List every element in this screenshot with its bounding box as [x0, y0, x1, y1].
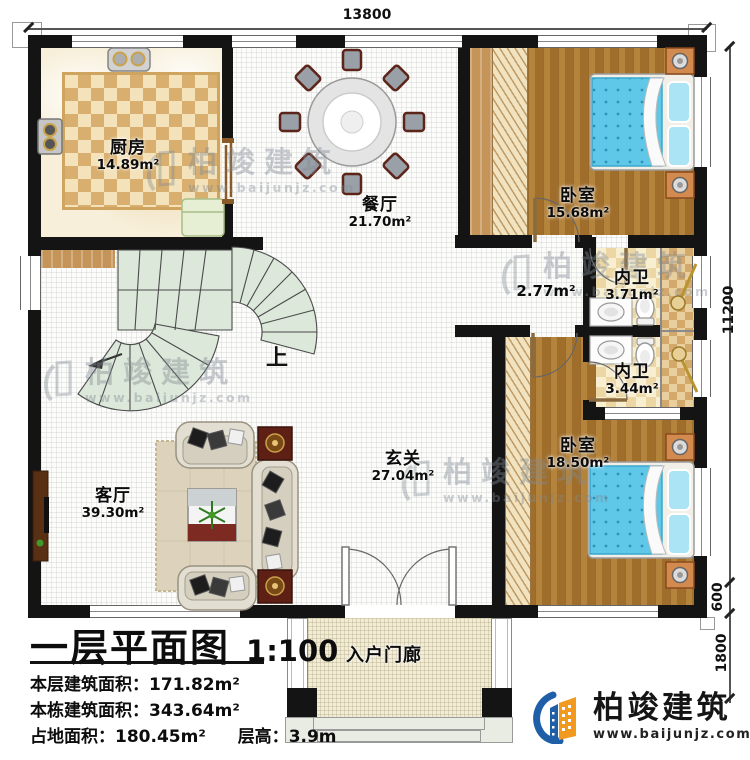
wall: [458, 47, 470, 235]
room-label-dining: 餐厅 21.70m²: [330, 197, 430, 230]
window: [20, 256, 41, 310]
porch-pier: [482, 688, 512, 717]
porch-pier: [287, 688, 317, 717]
wall: [455, 605, 538, 618]
stat-building-area: 本栋建筑面积：343.64m²: [30, 696, 240, 721]
porch-step: [317, 730, 481, 742]
window: [345, 35, 462, 48]
wall: [628, 235, 707, 248]
brand-name: 柏竣建筑: [593, 693, 750, 724]
brand-website: www.baijunjz.com: [593, 727, 750, 742]
floor-plan-canvas: 13800 11200 600 1800: [0, 0, 750, 760]
room-label-hallway: 2.77m²: [496, 283, 596, 300]
wall-thin: [660, 330, 694, 332]
window: [605, 407, 680, 420]
title-underline: [30, 661, 264, 664]
window: [232, 35, 296, 48]
porch-column: [491, 618, 512, 690]
room-label-living: 客厅 39.30m²: [63, 488, 163, 521]
room-label-kitchen: 厨房 14.89m²: [78, 140, 178, 173]
window: [692, 340, 711, 397]
stat-footprint-height: 占地面积：180.45m² 层高：3.9m: [30, 722, 337, 747]
bedroom-top-passage: [470, 47, 492, 235]
stat-floor-area: 本层建筑面积：171.82m²: [30, 670, 240, 695]
room-label-bedroom-bottom: 卧室 18.50m²: [528, 438, 628, 471]
wall: [28, 35, 41, 618]
room-label-foyer: 玄关 27.04m²: [353, 451, 453, 484]
room-label-porch: 入户门廊: [334, 647, 434, 666]
brand-logo-icon: [531, 690, 585, 744]
wall: [658, 605, 707, 618]
dimension-right-porch: 1800: [714, 613, 730, 693]
window: [538, 605, 658, 618]
wall: [455, 235, 532, 248]
stair-up-label: 上: [266, 340, 288, 372]
wall: [222, 47, 233, 142]
wall: [28, 237, 263, 250]
dimension-line-right: [729, 47, 731, 703]
brand-logo: 柏竣建筑 www.baijunjz.com: [531, 690, 750, 744]
dimension-right-main: 11200: [721, 270, 737, 350]
window: [692, 77, 711, 167]
bedroom-top-wardrobe: [492, 47, 528, 235]
room-label-bedroom-top: 卧室 15.68m²: [528, 188, 628, 221]
window: [692, 256, 711, 308]
window: [538, 35, 657, 48]
window: [72, 35, 183, 48]
window: [692, 468, 711, 556]
room-label-bath-top: 内卫 3.71m²: [582, 270, 682, 303]
room-label-bath-bottom: 内卫 3.44m²: [582, 364, 682, 397]
porch-step: [313, 717, 485, 730]
dimension-line-top: [28, 28, 707, 30]
wall: [492, 325, 505, 605]
stair-landing-strip: [41, 250, 115, 268]
dimension-top-width: 13800: [327, 7, 407, 23]
